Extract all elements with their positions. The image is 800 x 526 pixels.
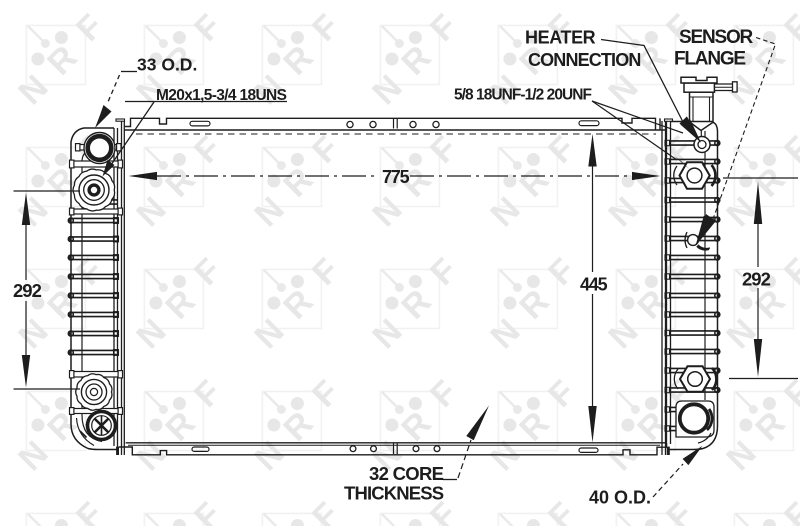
svg-text:40 O.D.: 40 O.D. — [589, 488, 651, 508]
svg-text:775: 775 — [382, 167, 410, 187]
svg-text:SENSOR: SENSOR — [679, 27, 754, 48]
svg-text:THICKNESS: THICKNESS — [344, 483, 444, 504]
svg-text:HEATER: HEATER — [525, 28, 596, 48]
svg-text:5/8 18UNF-1/2 20UNF: 5/8 18UNF-1/2 20UNF — [454, 87, 591, 104]
svg-text:FLANGE: FLANGE — [674, 49, 745, 70]
svg-text:M20x1,5-3/4 18UNS: M20x1,5-3/4 18UNS — [156, 87, 287, 104]
svg-text:32 CORE: 32 CORE — [369, 463, 444, 484]
svg-text:33 O.D.: 33 O.D. — [137, 55, 197, 75]
svg-text:CONNECTION: CONNECTION — [528, 50, 641, 70]
svg-text:292: 292 — [13, 280, 42, 301]
svg-text:445: 445 — [580, 275, 608, 295]
svg-text:292: 292 — [742, 269, 771, 290]
